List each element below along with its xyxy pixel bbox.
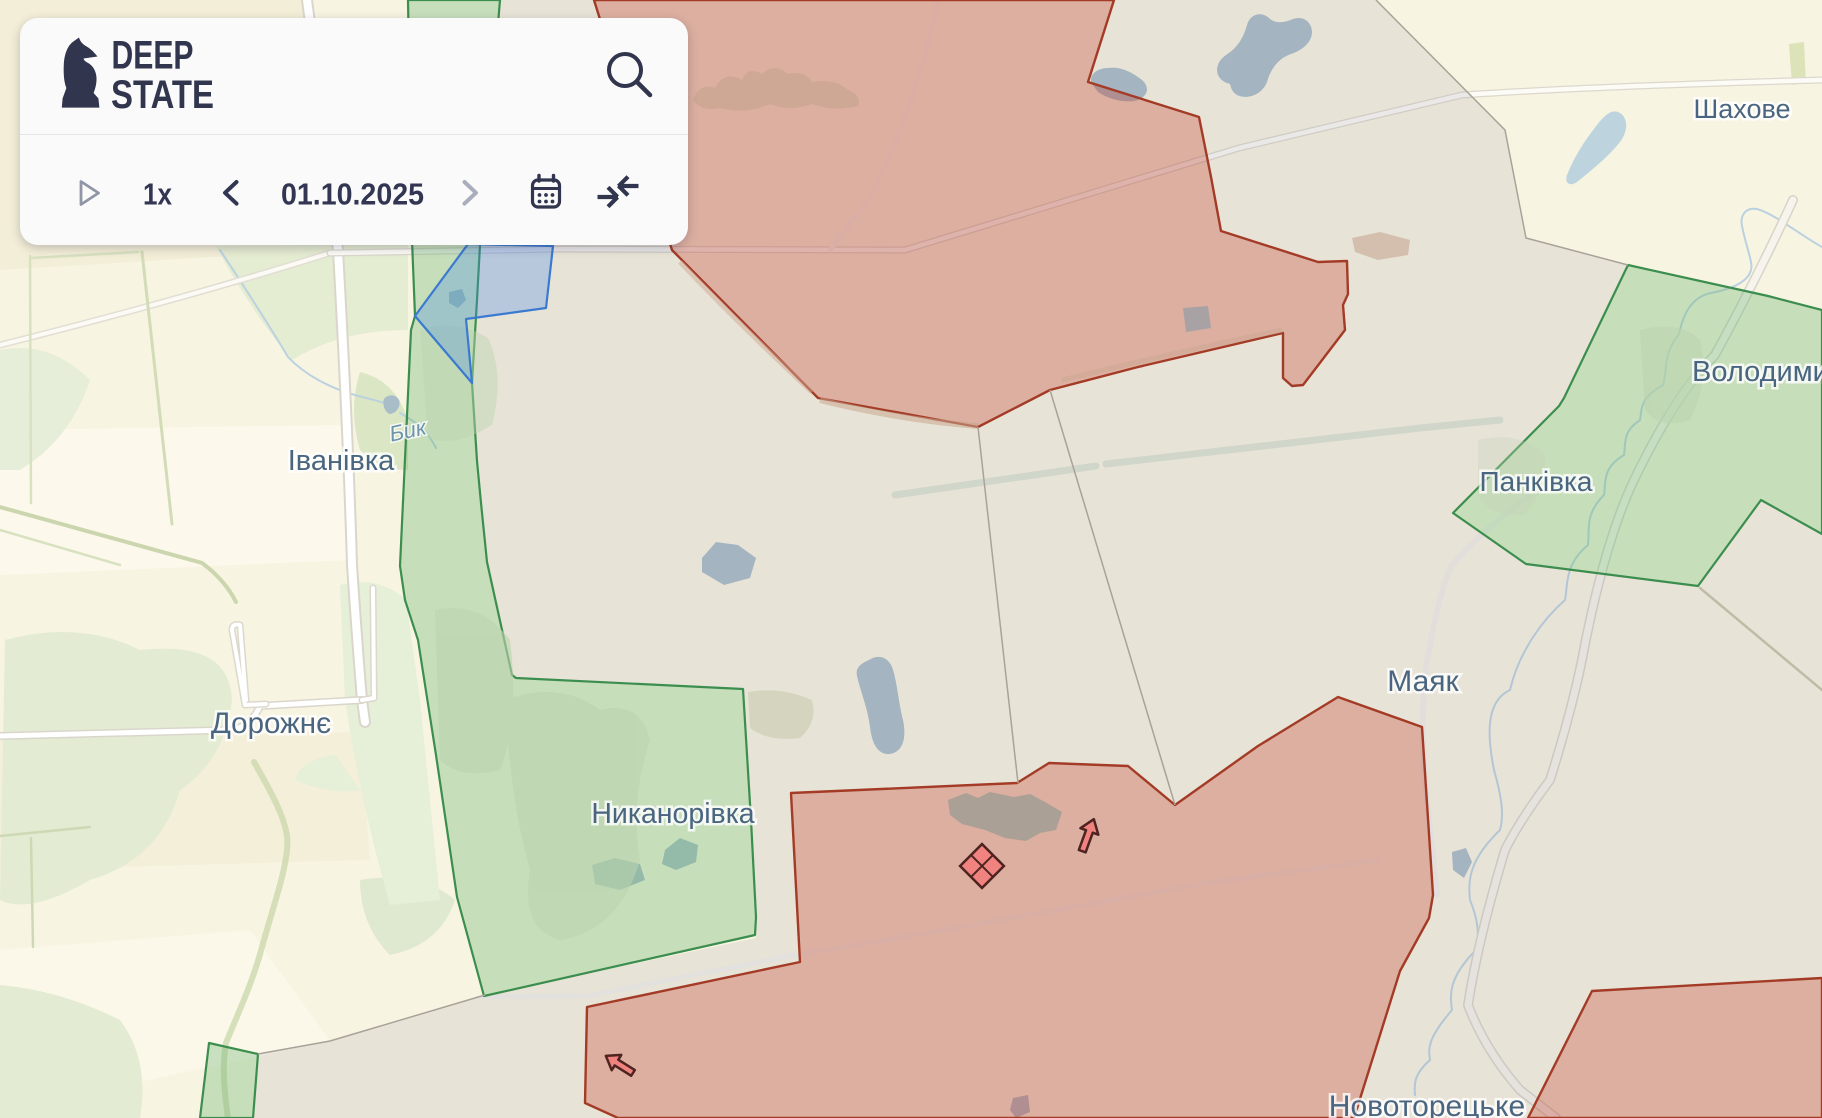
svg-text:Шахове: Шахове (1693, 94, 1790, 124)
svg-text:DEEP: DEEP (112, 34, 194, 78)
svg-text:1x: 1x (143, 177, 173, 212)
svg-text:Маяк: Маяк (1387, 665, 1459, 698)
svg-text:Никанорівка: Никанорівка (591, 798, 754, 830)
svg-text:Дорожнє: Дорожнє (211, 707, 331, 740)
svg-text:01.10.2025: 01.10.2025 (281, 177, 424, 212)
svg-text:Новоторецьке: Новоторецьке (1329, 1090, 1525, 1118)
svg-text:STATE: STATE (111, 73, 214, 117)
svg-text:Іванівка: Іванівка (288, 445, 395, 477)
svg-text:Володими: Володими (1692, 356, 1822, 388)
svg-text:Панківка: Панківка (1480, 466, 1593, 497)
